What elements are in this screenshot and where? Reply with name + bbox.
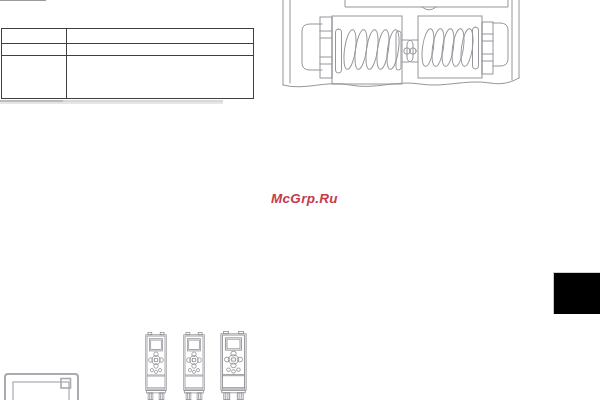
table-cell	[2, 44, 67, 56]
spec-table	[1, 28, 254, 99]
frequency-drive-drawing-2	[183, 332, 205, 400]
panel-drawing-lines	[5, 374, 78, 400]
right-end-tab	[493, 23, 508, 66]
table-cell	[67, 29, 253, 44]
table-cell	[2, 56, 67, 98]
table-cell	[67, 56, 253, 98]
connector-line	[0, 0, 46, 1]
drive-drawing-lines	[184, 332, 205, 399]
frequency-drive-drawing-3	[220, 331, 247, 400]
watermark-link[interactable]: McGrp.Ru	[271, 191, 338, 206]
terminal-drawing-lines	[283, 0, 519, 87]
black-page-index-tab	[553, 272, 600, 314]
control-panel-drawing	[3, 372, 83, 400]
drive-drawing-lines	[221, 331, 246, 399]
document-page: McGrp.Ru	[0, 0, 600, 400]
spring-clamp-terminal-block-drawing	[280, 0, 522, 92]
table-cell	[2, 29, 67, 44]
table-cell	[67, 44, 253, 56]
drive-drawing-lines	[146, 332, 167, 399]
left-spring-housing	[332, 16, 402, 84]
frequency-drive-drawing-1	[145, 332, 167, 400]
left-end-tab	[302, 24, 322, 70]
table-shadow-strip	[0, 102, 223, 104]
